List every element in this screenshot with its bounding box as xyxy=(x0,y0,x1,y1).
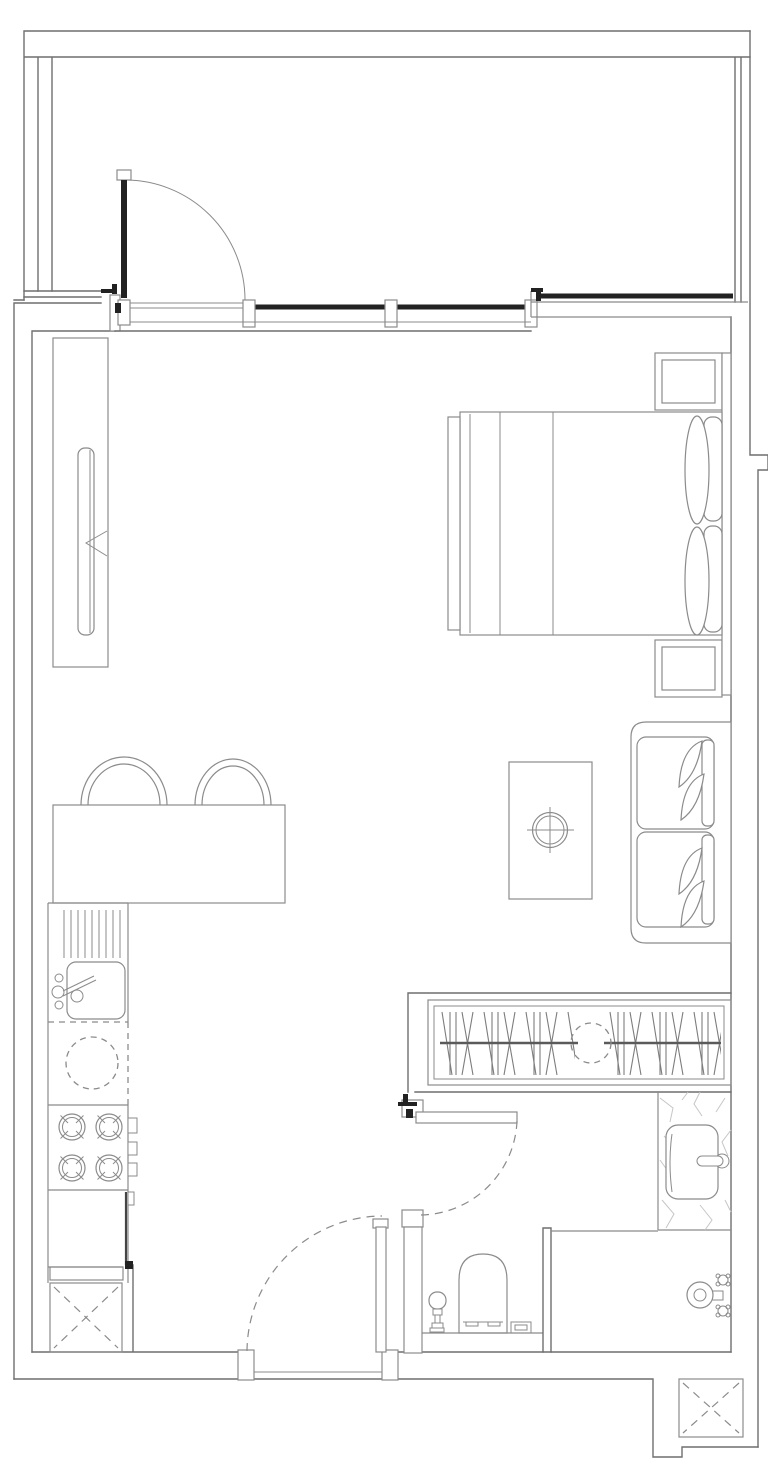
door-hinge-cap xyxy=(117,170,131,180)
mixer-handle xyxy=(716,1305,730,1317)
cooktop-4-burner xyxy=(59,1114,122,1181)
door-leaf xyxy=(121,180,127,298)
coffee-table xyxy=(509,762,592,899)
entry-door xyxy=(238,1216,398,1380)
sofa-two-seat xyxy=(631,722,731,943)
double-bed xyxy=(448,412,722,635)
bidet-sprayer xyxy=(429,1292,446,1332)
footboard xyxy=(448,417,460,630)
vanity-counter xyxy=(658,1092,731,1230)
door-jamb xyxy=(382,1350,398,1380)
stove-knobs xyxy=(128,1118,137,1205)
kitchen-counter xyxy=(48,903,137,1283)
pillow-upper xyxy=(685,416,709,524)
toilet xyxy=(459,1254,507,1333)
kitchen-sink xyxy=(52,962,125,1019)
door-jamb xyxy=(402,1210,423,1227)
window-mullion xyxy=(243,300,255,327)
bar-stool-right xyxy=(195,759,271,805)
nightstand-bottom xyxy=(655,640,722,697)
door-leaf xyxy=(376,1227,386,1352)
bedroom-area xyxy=(448,353,731,697)
back-cushion xyxy=(702,835,714,924)
shower-mixer xyxy=(687,1274,730,1317)
headboard xyxy=(722,353,731,695)
tall-cabinet xyxy=(53,338,108,667)
door-swing-arc xyxy=(247,1216,382,1351)
door-threshold xyxy=(128,303,243,308)
nightstand-top xyxy=(655,353,722,410)
wardrobe xyxy=(408,993,731,1092)
floor-drain xyxy=(511,1322,531,1333)
shower-screen xyxy=(543,1228,551,1352)
kitchen xyxy=(48,338,285,1352)
door-jamb xyxy=(238,1350,254,1380)
corner-shaft xyxy=(679,1379,743,1437)
living-window xyxy=(110,295,537,331)
door-swing-arc xyxy=(125,180,245,300)
living-area xyxy=(509,722,731,943)
back-cushion xyxy=(702,740,714,826)
pillow-lower xyxy=(685,527,709,635)
washing-machine xyxy=(66,1037,118,1089)
kitchen-shaft xyxy=(50,1283,122,1352)
mixer-handle xyxy=(716,1274,730,1286)
bathroom xyxy=(398,1092,731,1353)
drain-board xyxy=(64,910,120,958)
door-swing-arc xyxy=(421,1121,517,1215)
window-mullion xyxy=(385,300,397,327)
bar-stool-left xyxy=(81,757,167,805)
basin-faucet xyxy=(697,1154,729,1168)
floor-plan-canvas xyxy=(0,0,768,1463)
bar-counter xyxy=(53,805,285,903)
shower xyxy=(543,1228,730,1352)
balcony-door xyxy=(101,170,245,325)
door-leaf xyxy=(416,1112,517,1123)
bedroom-window xyxy=(531,288,748,317)
counter-base xyxy=(50,1267,123,1280)
